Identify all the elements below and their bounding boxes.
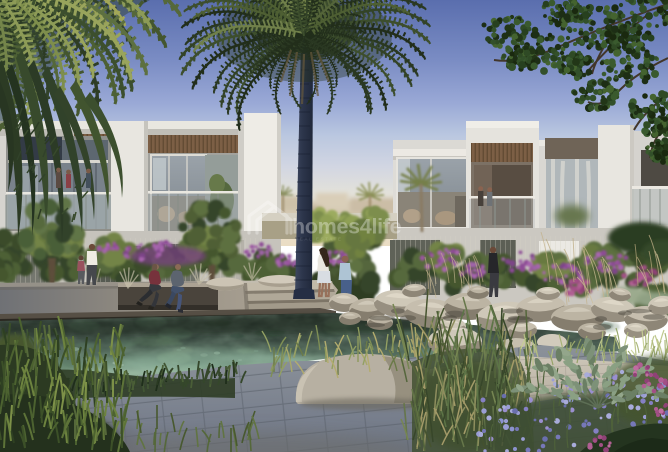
svg-text:REAL ESTATE: REAL ESTATE bbox=[295, 237, 343, 242]
svg-text:homes4life: homes4life bbox=[292, 215, 402, 239]
